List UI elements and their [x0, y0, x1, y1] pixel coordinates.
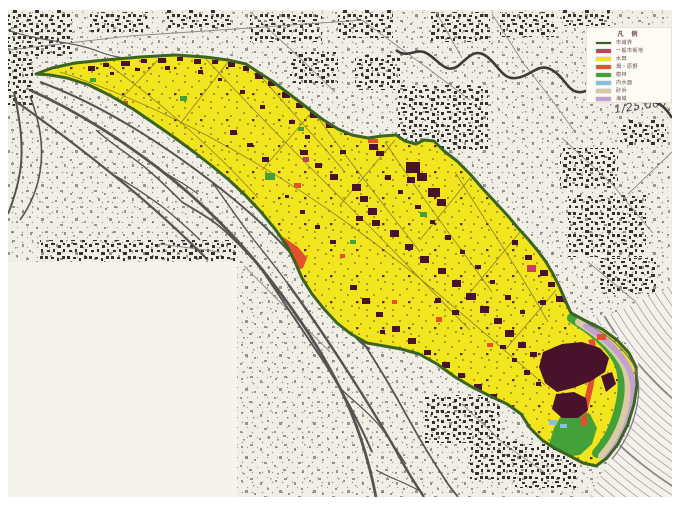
legend-swatch — [596, 57, 611, 62]
legend-item-label: 畑・原野 — [616, 65, 638, 70]
legend-swatch — [596, 73, 611, 78]
legend-item-label: 樹林 — [616, 73, 627, 78]
legend-swatch — [596, 97, 611, 102]
legend-item: 一般市街地 — [587, 47, 671, 55]
legend-swatch — [596, 42, 611, 45]
legend-item: 樹林 — [587, 71, 671, 79]
legend-swatch — [596, 81, 611, 86]
legend: 凡 例 市域界 一般市街地 水田 畑・原野 樹林 内水面 砂浜 海域 — [586, 27, 672, 103]
legend-item: 水田 — [587, 55, 671, 63]
map-image: 1/25,000 — [0, 0, 680, 508]
legend-item: 海域 — [587, 95, 671, 103]
legend-item: 内水面 — [587, 79, 671, 87]
legend-swatch — [596, 65, 611, 70]
legend-item-label: 海域 — [616, 97, 627, 102]
blank-sheet-area — [8, 262, 237, 497]
legend-item-label: 水田 — [616, 57, 627, 62]
legend-swatch — [596, 49, 611, 54]
legend-item-label: 内水面 — [616, 81, 633, 86]
legend-item-label: 一般市街地 — [616, 49, 644, 54]
legend-item-label: 市域界 — [616, 41, 633, 46]
legend-item: 砂浜 — [587, 87, 671, 95]
map-page: 1/25,000 — [0, 0, 680, 508]
legend-title: 凡 例 — [587, 31, 671, 38]
legend-item: 市域界 — [587, 39, 671, 47]
legend-items: 市域界 一般市街地 水田 畑・原野 樹林 内水面 砂浜 海域 — [587, 39, 671, 103]
legend-item-label: 砂浜 — [616, 89, 627, 94]
legend-swatch — [596, 89, 611, 94]
legend-item: 畑・原野 — [587, 63, 671, 71]
